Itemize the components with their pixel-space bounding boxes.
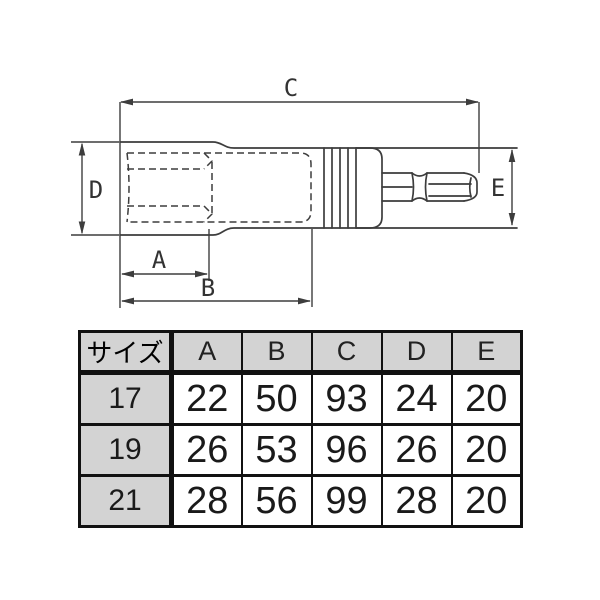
extension-lines xyxy=(71,102,479,308)
value-cell: 26 xyxy=(382,425,452,476)
dim-label-e: E xyxy=(491,174,505,202)
value-cell: 93 xyxy=(312,373,382,425)
table-row: 21 28 56 99 28 20 xyxy=(80,476,522,527)
table-header-d: D xyxy=(382,332,452,373)
value-cell: 99 xyxy=(312,476,382,527)
hidden-cavity-lines xyxy=(127,153,311,222)
socket-bit-diagram: C D E A B xyxy=(0,0,600,330)
value-cell: 96 xyxy=(312,425,382,476)
dimension-table: サイズ A B C D E 17 22 50 93 24 20 19 26 53… xyxy=(78,330,523,528)
value-cell: 20 xyxy=(452,425,522,476)
size-cell: 17 xyxy=(80,373,172,425)
table-header-row: サイズ A B C D E xyxy=(80,332,522,373)
dim-label-a: A xyxy=(152,246,167,274)
value-cell: 24 xyxy=(382,373,452,425)
size-cell: 19 xyxy=(80,425,172,476)
socket-body-outline xyxy=(120,142,517,235)
dimension-d: D xyxy=(79,143,104,235)
value-cell: 20 xyxy=(452,476,522,527)
value-cell: 28 xyxy=(172,476,242,527)
value-cell: 53 xyxy=(242,425,312,476)
table-header-c: C xyxy=(312,332,382,373)
dim-label-c: C xyxy=(284,74,298,102)
size-cell: 21 xyxy=(80,476,172,527)
value-cell: 20 xyxy=(452,373,522,425)
value-cell: 22 xyxy=(172,373,242,425)
knurled-rings xyxy=(324,148,356,228)
dimension-b: B xyxy=(121,274,311,304)
value-cell: 26 xyxy=(172,425,242,476)
table-header-size: サイズ xyxy=(80,332,172,373)
dim-label-b: B xyxy=(201,274,215,302)
value-cell: 50 xyxy=(242,373,312,425)
table-header-b: B xyxy=(242,332,312,373)
dimension-c: C xyxy=(120,74,479,105)
table-row: 19 26 53 96 26 20 xyxy=(80,425,522,476)
sleeve-end-cap xyxy=(356,148,382,228)
dimension-e: E xyxy=(491,149,516,226)
hex-shank xyxy=(382,173,477,201)
value-cell: 28 xyxy=(382,476,452,527)
dimension-a: A xyxy=(121,246,208,277)
table-row: 17 22 50 93 24 20 xyxy=(80,373,522,425)
table-header-a: A xyxy=(172,332,242,373)
table-header-e: E xyxy=(452,332,522,373)
value-cell: 56 xyxy=(242,476,312,527)
dim-label-d: D xyxy=(89,176,103,204)
